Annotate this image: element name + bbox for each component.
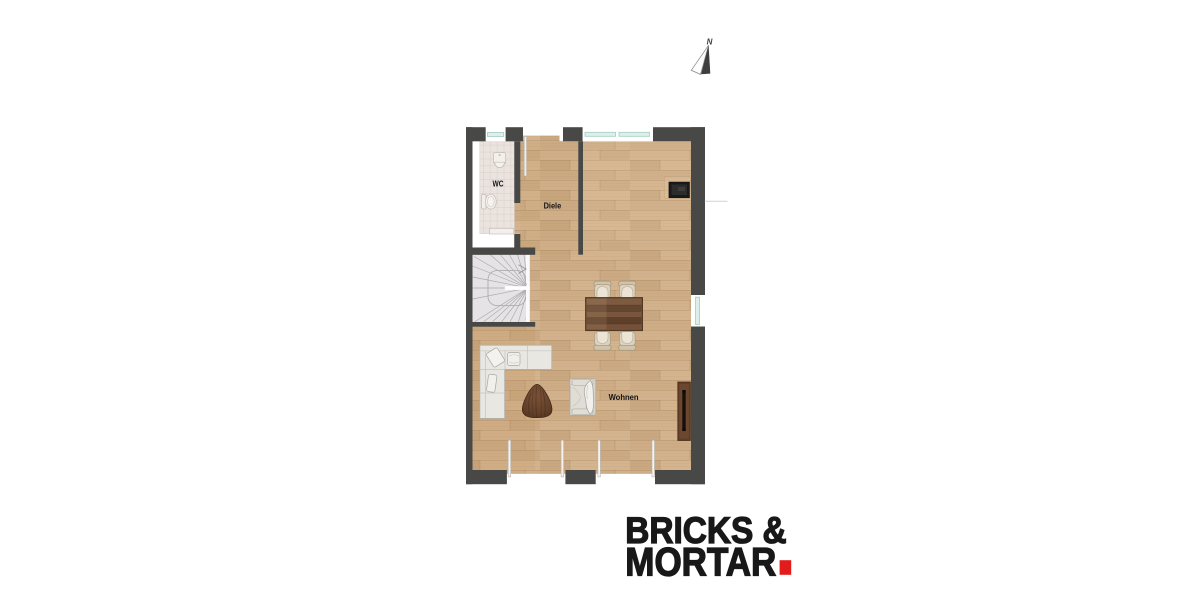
svg-text:MORTAR: MORTAR [625, 540, 776, 584]
svg-text:Wohnen: Wohnen [609, 393, 639, 402]
svg-text:Diele: Diele [544, 202, 562, 211]
svg-text:N: N [707, 37, 713, 46]
svg-text:WC: WC [493, 179, 504, 188]
